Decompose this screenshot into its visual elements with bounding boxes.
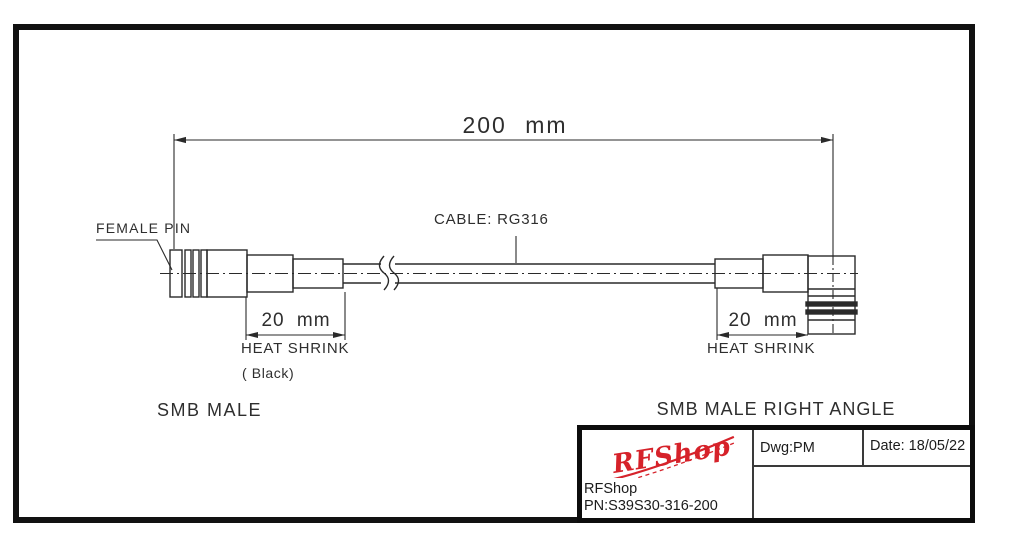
female-pin-leader <box>96 240 172 270</box>
arrowhead <box>717 332 729 338</box>
left-heat-shrink-label: HEAT SHRINK <box>241 340 349 357</box>
company-name: RFShop <box>584 481 637 497</box>
title-block: RFShop Dwg:PM Date: 18/05/22 RFShop PN:S… <box>577 425 975 523</box>
drawing-sheet: 200 mm FEMALE PIN CABLE: RG316 20 mm 20 … <box>0 0 1024 551</box>
rfshop-logo-text: RFShop <box>609 432 732 478</box>
title-block-divider <box>752 430 754 518</box>
title-block-divider <box>862 430 864 465</box>
connector-ring <box>806 302 857 306</box>
title-block-divider <box>752 465 970 467</box>
arrowhead <box>333 332 345 338</box>
arrowhead <box>246 332 258 338</box>
arrowhead <box>821 137 833 143</box>
part-number: PN:S39S30-316-200 <box>584 498 718 514</box>
right-heat-shrink-dimension: 20 mm <box>713 310 813 332</box>
arrowhead <box>174 137 186 143</box>
drawing-author-field: Dwg:PM <box>760 440 815 456</box>
connector-body <box>808 256 855 334</box>
cable-type-label: CABLE: RG316 <box>434 211 549 228</box>
right-connector-label: SMB MALE RIGHT ANGLE <box>577 399 975 420</box>
female-pin-label: FEMALE PIN <box>96 220 191 236</box>
arrowhead <box>796 332 808 338</box>
total-length-dimension-label: 200 mm <box>420 112 610 139</box>
connector-ring <box>806 310 857 314</box>
heat-shrink-color-note: ( Black) <box>242 365 294 381</box>
left-heat-shrink-dimension: 20 mm <box>246 310 346 332</box>
smb-male-right-angle-connector <box>806 256 857 334</box>
dimension-200mm <box>174 134 833 256</box>
date-field: Date: 18/05/22 <box>870 438 965 454</box>
right-heat-shrink-label: HEAT SHRINK <box>707 340 815 357</box>
rfshop-logo: RFShop <box>588 432 740 478</box>
left-connector-label: SMB MALE <box>157 400 262 421</box>
